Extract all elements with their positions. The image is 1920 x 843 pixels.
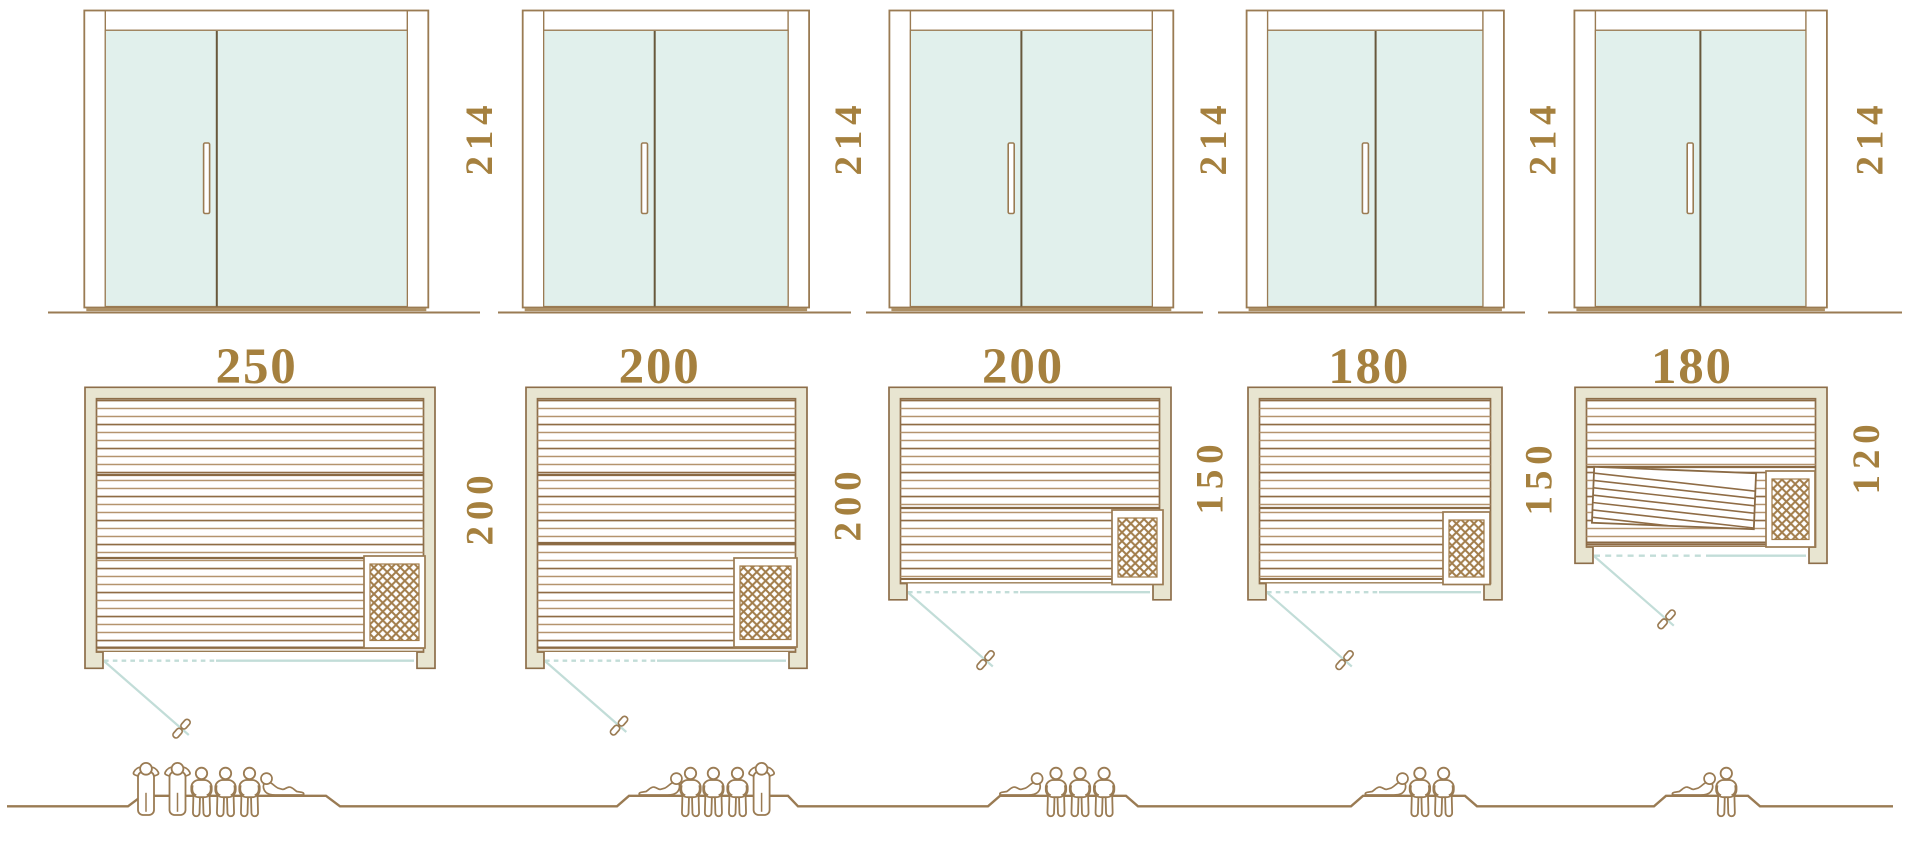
svg-text:180: 180 bbox=[1328, 339, 1410, 395]
svg-text:214: 214 bbox=[458, 100, 501, 176]
svg-text:120: 120 bbox=[1845, 419, 1888, 495]
svg-text:200: 200 bbox=[982, 339, 1064, 395]
svg-text:180: 180 bbox=[1651, 339, 1733, 395]
svg-text:214: 214 bbox=[827, 100, 870, 176]
svg-text:214: 214 bbox=[1849, 100, 1892, 176]
svg-text:200: 200 bbox=[459, 470, 502, 546]
svg-text:250: 250 bbox=[216, 339, 298, 395]
svg-text:214: 214 bbox=[1522, 100, 1565, 176]
svg-text:200: 200 bbox=[619, 339, 701, 395]
svg-text:214: 214 bbox=[1192, 100, 1235, 176]
svg-text:150: 150 bbox=[1518, 440, 1561, 516]
svg-text:200: 200 bbox=[827, 466, 870, 542]
svg-text:150: 150 bbox=[1189, 439, 1232, 515]
